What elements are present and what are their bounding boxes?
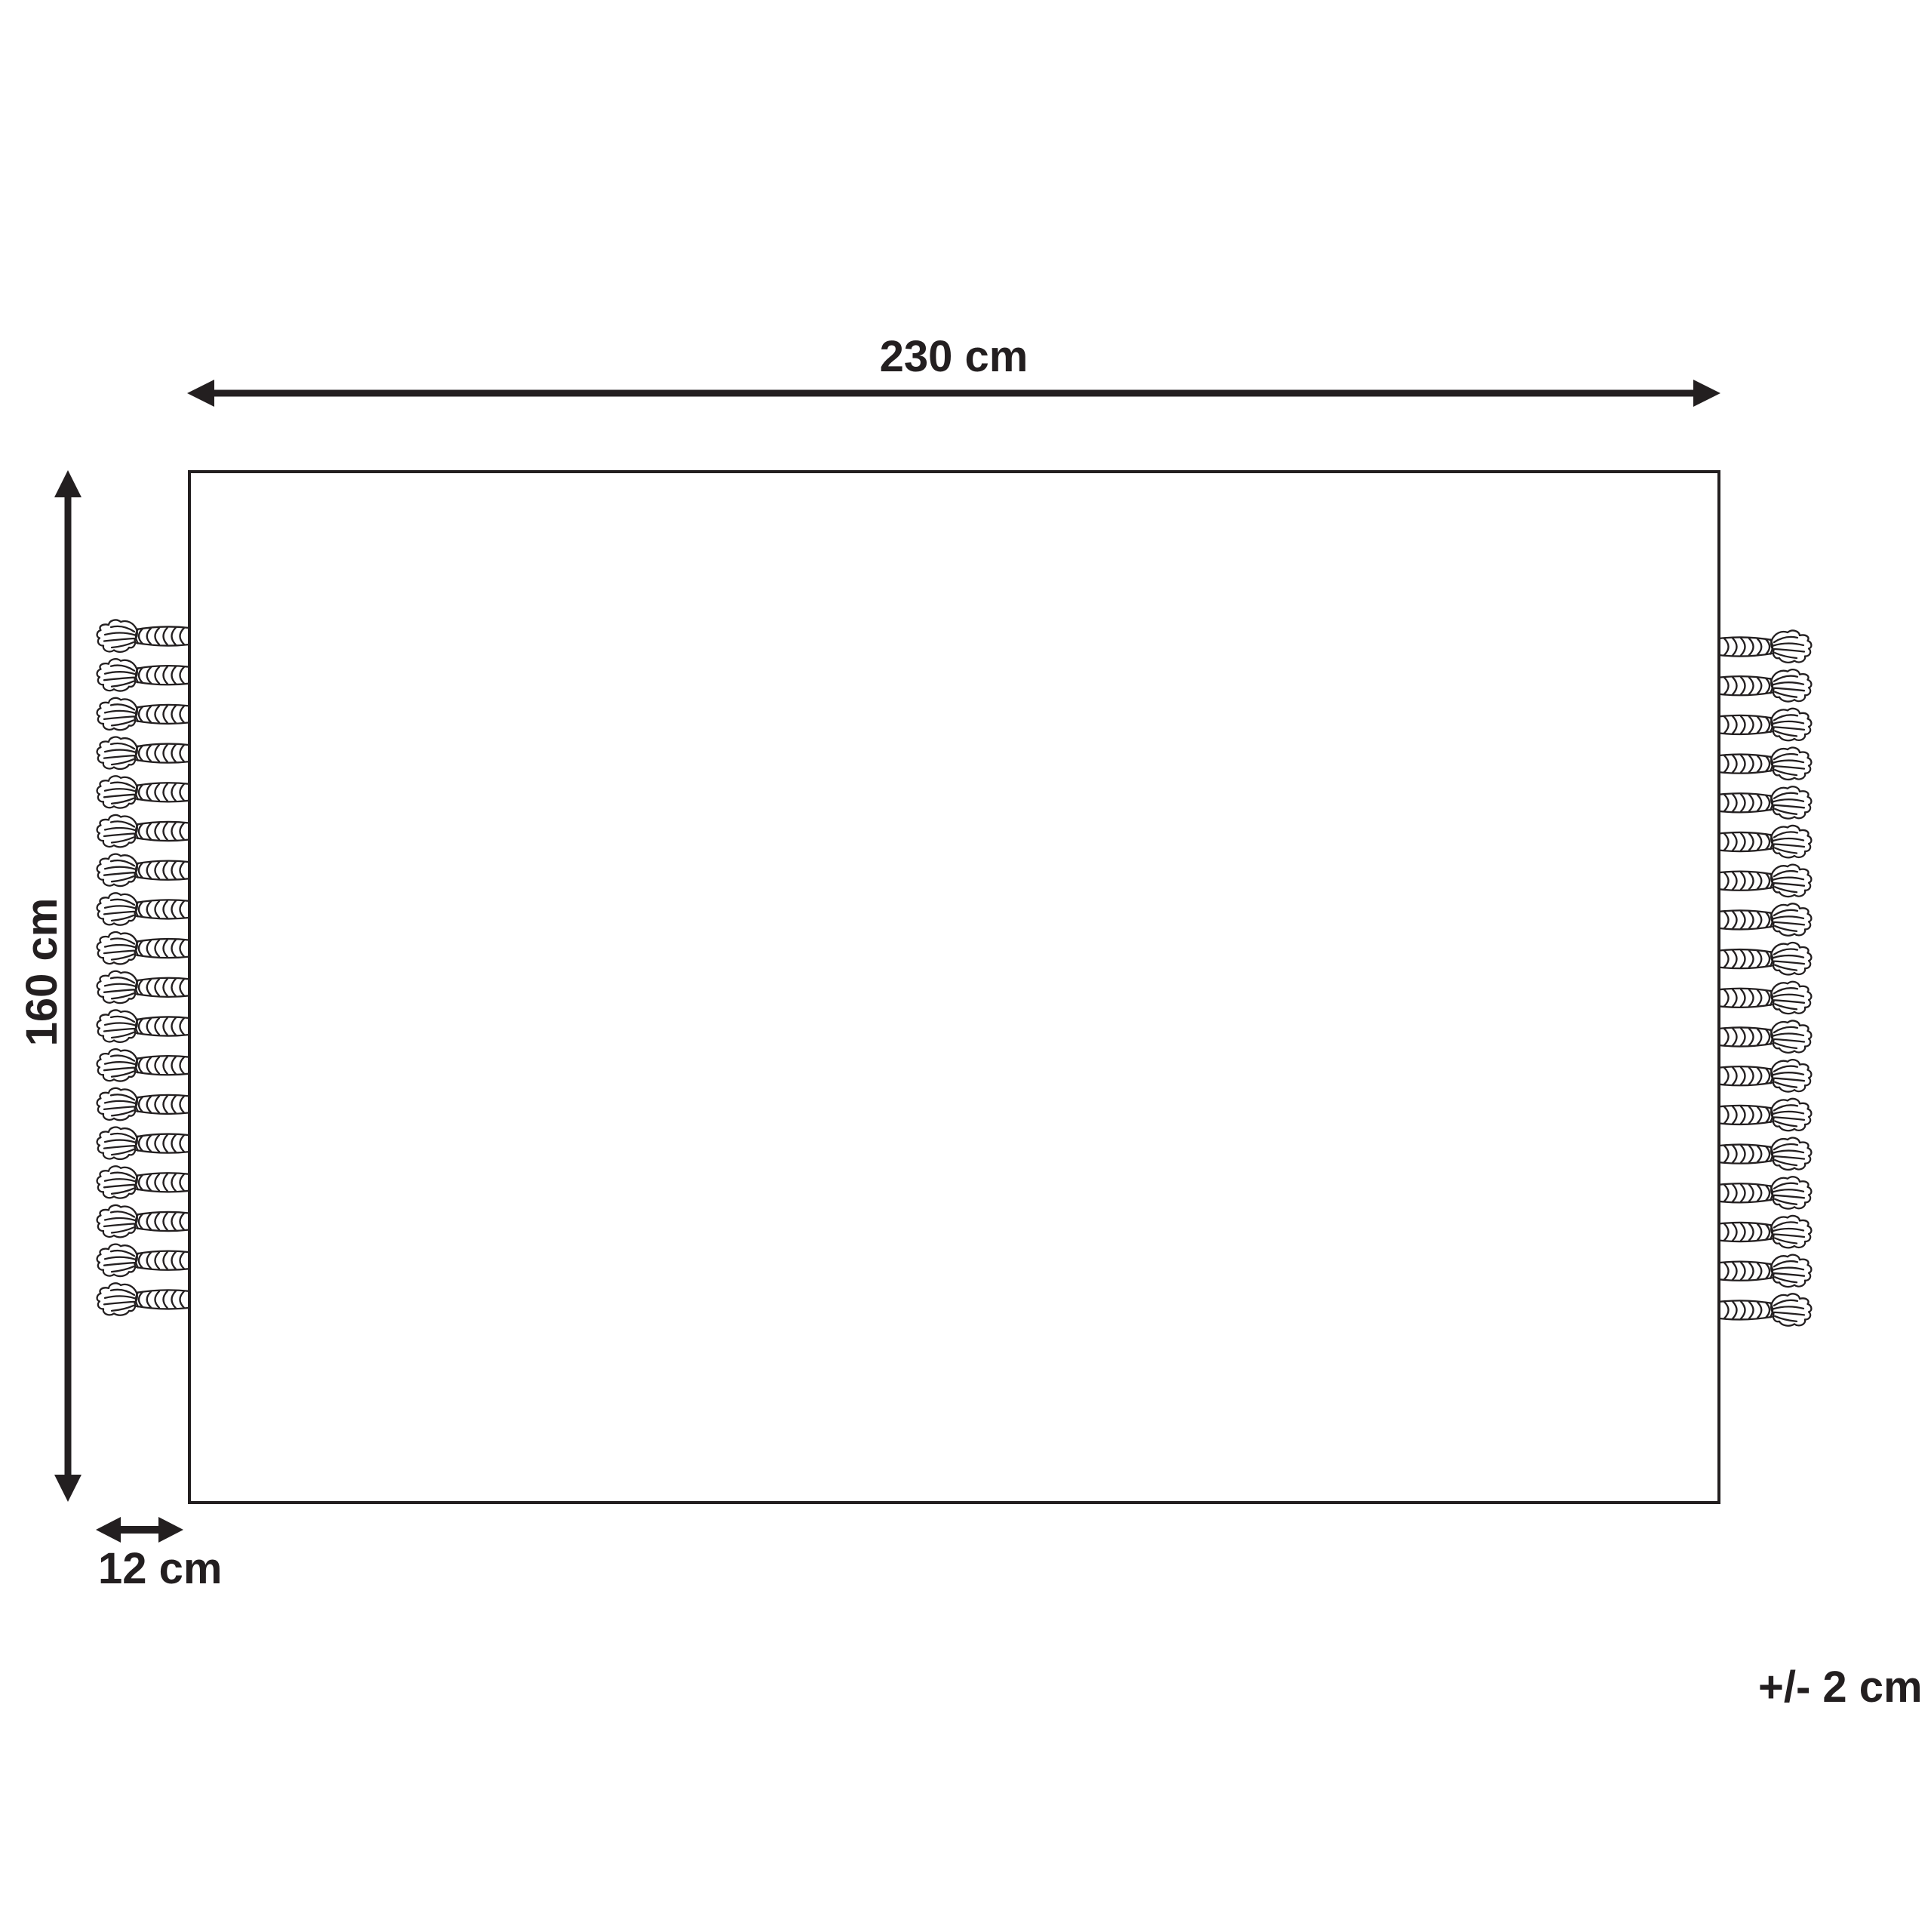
tassel-icon [1719, 943, 1811, 974]
tassel-icon [1719, 1177, 1811, 1208]
tassel-icon [1719, 709, 1811, 740]
tassel-icon [1719, 1294, 1811, 1325]
tassel-icon [97, 620, 189, 651]
tassel-icon [97, 1010, 189, 1041]
tassel-icon [1719, 903, 1811, 935]
tassel-icon [1719, 669, 1811, 701]
tassel-icon [97, 893, 189, 924]
tassel-icon [1719, 826, 1811, 857]
tassel-icon [1719, 748, 1811, 780]
height-arrow-head-top [54, 470, 81, 497]
width-arrow-head-right [1693, 380, 1720, 407]
tassel-icon [97, 1244, 189, 1276]
tassels-right [1719, 630, 1811, 1325]
height-arrow-head-bottom [54, 1475, 81, 1502]
tassel-icon [1719, 865, 1811, 897]
tolerance-label: +/- 2 cm [1758, 1666, 1923, 1709]
width-arrow-head-left [187, 380, 214, 407]
fringe-arrow-head-right [158, 1517, 183, 1543]
diagram-canvas [0, 0, 1931, 1932]
tassel-icon [97, 1166, 189, 1198]
fringe-arrow-head-left [96, 1517, 121, 1543]
tassel-icon [97, 815, 189, 847]
tassel-icon [1719, 1138, 1811, 1170]
tassel-icon [1719, 1255, 1811, 1287]
fringe-dimension-label: 12 cm [98, 1547, 222, 1591]
tassel-icon [97, 854, 189, 886]
tassel-icon [1719, 1020, 1811, 1052]
tassel-icon [97, 1088, 189, 1120]
rug-dimension-diagram: 230 cm 160 cm 12 cm +/- 2 cm [0, 0, 1931, 1932]
width-dimension-label: 230 cm [880, 335, 1029, 379]
tassel-icon [1719, 786, 1811, 818]
tassel-icon [97, 776, 189, 808]
tassel-icon [1719, 982, 1811, 1014]
tassel-icon [1719, 1099, 1811, 1131]
tassel-icon [97, 932, 189, 964]
tassel-icon [1719, 1216, 1811, 1247]
tassel-icon [97, 971, 189, 1003]
tassel-icon [97, 659, 189, 691]
tassel-icon [1719, 1060, 1811, 1091]
tassel-icon [97, 1283, 189, 1315]
tassel-icon [97, 1128, 189, 1159]
tassel-icon [1719, 630, 1811, 662]
width-arrow [187, 380, 1720, 407]
tassel-icon [97, 1049, 189, 1081]
height-dimension-label: 160 cm [20, 898, 64, 1047]
tassels-left [97, 620, 189, 1315]
fringe-arrow [96, 1517, 183, 1543]
rug-outline [189, 472, 1719, 1503]
tassel-icon [97, 1205, 189, 1237]
tassel-icon [97, 737, 189, 769]
tassel-icon [97, 698, 189, 730]
